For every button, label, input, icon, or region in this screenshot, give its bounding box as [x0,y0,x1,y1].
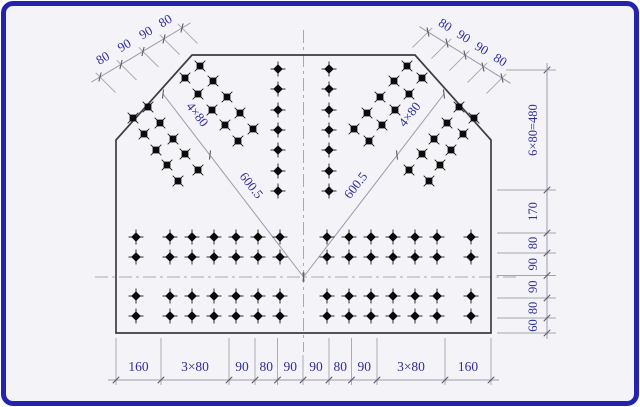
bolt-symbol [163,230,178,245]
bolt-symbol [464,289,479,304]
bolt-symbol [396,55,417,76]
bolt-symbol [251,309,266,324]
dimension-tick [396,150,397,159]
dimension-label: 80 [260,359,274,374]
bolt-symbol [322,62,337,77]
bolt-symbol [386,250,401,265]
bolt-hole [324,64,334,74]
bolt-symbol [369,86,390,107]
bolt-hole [187,311,197,321]
bolt-hole [324,125,334,135]
bolt-hole [388,252,398,262]
bolt-symbol [408,250,423,265]
extension-line [431,39,451,59]
bolt-symbol [364,309,379,324]
bolt-symbol [440,139,461,160]
bolt-hole [366,232,376,242]
dimension-tick [209,150,210,159]
bolt-hole [275,291,285,301]
bolt-hole [187,252,197,262]
bolt-hole [432,252,442,262]
bolt-symbol [430,309,445,324]
bolt-hole [253,252,263,262]
bolt-symbol [423,128,444,149]
bolt-symbol [174,143,195,164]
bolt-symbol [229,289,244,304]
bolt-hole [366,252,376,262]
bolt-hole [344,291,354,301]
bolt-symbol [229,230,244,245]
bolt-hole [273,125,283,135]
bolt-symbol [156,154,177,175]
bolt-hole [165,232,175,242]
bolt-symbol [430,230,445,245]
bolt-hole [131,252,141,262]
bolt-hole [324,186,334,196]
bolt-hole [273,64,283,74]
bolt-hole [410,311,420,321]
bolt-hole [273,84,283,94]
bolt-symbol [464,309,479,324]
bolt-hole [209,291,219,301]
bolt-symbol [411,143,432,164]
bolt-hole [366,311,376,321]
bolt-hole [410,252,420,262]
bolt-symbol [408,289,423,304]
bolt-symbol [342,309,357,324]
bolt-hole [131,291,141,301]
bolt-symbol [129,230,144,245]
bolt-symbol [271,143,286,158]
bolt-symbol [463,107,484,128]
bolt-symbol [383,70,404,91]
bolt-hole [187,232,197,242]
extension-line [139,47,159,67]
bolt-hole [344,311,354,321]
extension-line [117,60,137,80]
bolt-symbol [214,114,235,135]
bolt-symbol [364,250,379,265]
bolt-symbol [398,159,419,180]
bolt-symbol [207,250,222,265]
bolt-symbol [229,102,250,123]
bolt-symbol [185,309,200,324]
bolt-hole [324,166,334,176]
bolt-hole [187,291,197,301]
bolt-hole [324,84,334,94]
bolt-hole [273,145,283,155]
dimension-label: 90 [235,359,249,374]
bolt-symbol [149,112,170,133]
bolt-symbol [273,230,288,245]
bolt-hole [322,311,332,321]
dimension-label: 3×80 [397,359,425,374]
bolt-symbol [163,289,178,304]
bolt-symbol [207,230,222,245]
bolt-symbol [202,70,223,91]
bolt-hole [410,291,420,301]
bolt-hole [253,232,263,242]
bolt-hole [466,311,476,321]
bolt-symbol [448,96,469,117]
dimension-label: 80 [436,15,455,35]
dimension-label: 90 [454,26,473,46]
dimension-label: 80 [491,50,510,70]
dimension-label: 90 [526,258,540,271]
dimension-label: 170 [526,202,540,221]
bolt-hole [388,291,398,301]
bolt-symbol [408,230,423,245]
bolt-hole [165,291,175,301]
bolt-symbol [251,289,266,304]
bolt-hole [466,291,476,301]
bolt-symbol [163,250,178,265]
bolt-symbol [320,289,335,304]
bolt-symbol [322,82,337,97]
bolt-hole [322,291,332,301]
dimension-tick [162,89,163,98]
extension-line [412,28,432,48]
dimension-label: 80 [156,11,175,31]
bolt-hole [324,105,334,115]
bolt-symbol [371,114,392,135]
extension-line [178,24,198,44]
bolt-hole [231,311,241,321]
bolt-hole [273,186,283,196]
bolt-hole [209,232,219,242]
bolt-hole [253,291,263,301]
bolt-symbol [162,128,183,149]
bolt-symbol [429,154,450,175]
bolt-symbol [229,250,244,265]
extension-line [467,63,487,83]
bolt-symbol [358,130,379,151]
bolt-hole [466,232,476,242]
bolt-hole [131,232,141,242]
extension-line [486,74,506,94]
bolt-hole [432,311,442,321]
bolt-hole [275,252,285,262]
bolt-symbol [251,230,266,245]
bolt-hole [275,232,285,242]
dimension-label: 80 [334,359,348,374]
bolt-hole [322,232,332,242]
dimension-label: 90 [309,359,323,374]
extension-line [449,51,469,71]
dimension-label: 90 [526,281,540,294]
bolt-symbol [418,170,439,191]
dimension-label: 90 [115,35,134,55]
bolt-symbol [408,309,423,324]
bolt-hole [432,291,442,301]
bolt-symbol [343,118,364,139]
bolt-hole [366,291,376,301]
bolt-symbol [145,139,166,160]
bolt-symbol [364,289,379,304]
bolt-symbol [216,86,237,107]
bolt-hole [131,311,141,321]
bolt-symbol [163,309,178,324]
bolt-hole [273,105,283,115]
bolt-symbol [342,230,357,245]
bolt-symbol [185,230,200,245]
bolt-symbol [129,250,144,265]
dimension-label: 90 [358,359,372,374]
bolt-symbol [273,250,288,265]
dimension-label: 160 [458,359,479,374]
bolt-symbol [386,309,401,324]
bolt-symbol [436,112,457,133]
bolt-symbol [185,289,200,304]
bolt-symbol [229,309,244,324]
bolt-hole [231,291,241,301]
screenshot-canvas: 80909080809090806×80=4801708090908060160… [0,0,640,407]
bolt-hole [165,252,175,262]
bolt-hole [231,252,241,262]
bolt-hole [344,252,354,262]
bolt-symbol [207,289,222,304]
bolt-hole [322,252,332,262]
bolt-symbol [167,170,188,191]
bolt-symbol [430,289,445,304]
extension-line [96,73,116,93]
bolt-symbol [322,103,337,118]
bolt-symbol [356,102,377,123]
dimension-line [163,94,304,277]
bolt-symbol [187,159,208,180]
bolt-symbol [322,184,337,199]
bolt-symbol [342,250,357,265]
dimension-label: 60 [526,319,540,332]
bolt-symbol [320,230,335,245]
bolt-hole [410,232,420,242]
dimension-label: 90 [472,38,491,58]
bolt-symbol [273,309,288,324]
bolt-symbol [464,230,479,245]
bolt-hole [388,232,398,242]
dimension-label: 6×80=480 [526,104,540,156]
bolt-symbol [452,123,473,144]
bolt-symbol [189,55,210,76]
bolt-symbol [129,309,144,324]
bolt-symbol [137,96,158,117]
bolt-symbol [386,289,401,304]
bolt-symbol [185,250,200,265]
extension-line [160,35,180,55]
bolt-hole [209,311,219,321]
dimension-label: 80 [93,48,112,68]
bolt-symbol [122,107,143,128]
bolt-symbol [342,289,357,304]
bolt-symbol [271,103,286,118]
dimension-label: 80 [526,237,540,250]
dimension-line [304,94,445,277]
bolt-symbol [242,118,263,139]
bolt-hole [273,166,283,176]
bolt-symbol [207,309,222,324]
bolt-hole [165,311,175,321]
bolt-hole [432,232,442,242]
bolt-symbol [227,130,248,151]
bolt-hole [275,311,285,321]
bolt-hole [344,232,354,242]
bolt-symbol [322,123,337,138]
bolt-symbol [273,289,288,304]
bolt-hole [253,311,263,321]
gusset-plate-bolt-layout-drawing: 80909080809090806×80=4801708090908060160… [0,0,640,407]
dimension-tick [443,89,444,98]
bolt-hole [324,145,334,155]
bolt-symbol [322,164,337,179]
bolt-hole [209,252,219,262]
bolt-symbol [322,143,337,158]
dimension-label: 80 [526,302,540,315]
bolt-symbol [251,250,266,265]
bolt-hole [388,311,398,321]
bolt-symbol [133,123,154,144]
dimension-label: 160 [128,359,149,374]
bolt-symbol [386,230,401,245]
bolt-symbol [320,309,335,324]
bolt-symbol [271,62,286,77]
dimension-label: 90 [136,23,155,43]
bolt-symbol [271,123,286,138]
bolt-hole [466,252,476,262]
bolt-symbol [271,184,286,199]
bolt-hole [231,232,241,242]
bolt-symbol [271,82,286,97]
bolt-symbol [129,289,144,304]
bolt-symbol [320,250,335,265]
bolt-symbol [464,250,479,265]
bolt-symbol [364,230,379,245]
bolt-symbol [271,164,286,179]
dimension-label: 3×80 [181,359,209,374]
bolt-symbol [430,250,445,265]
dimension-label: 90 [284,359,298,374]
